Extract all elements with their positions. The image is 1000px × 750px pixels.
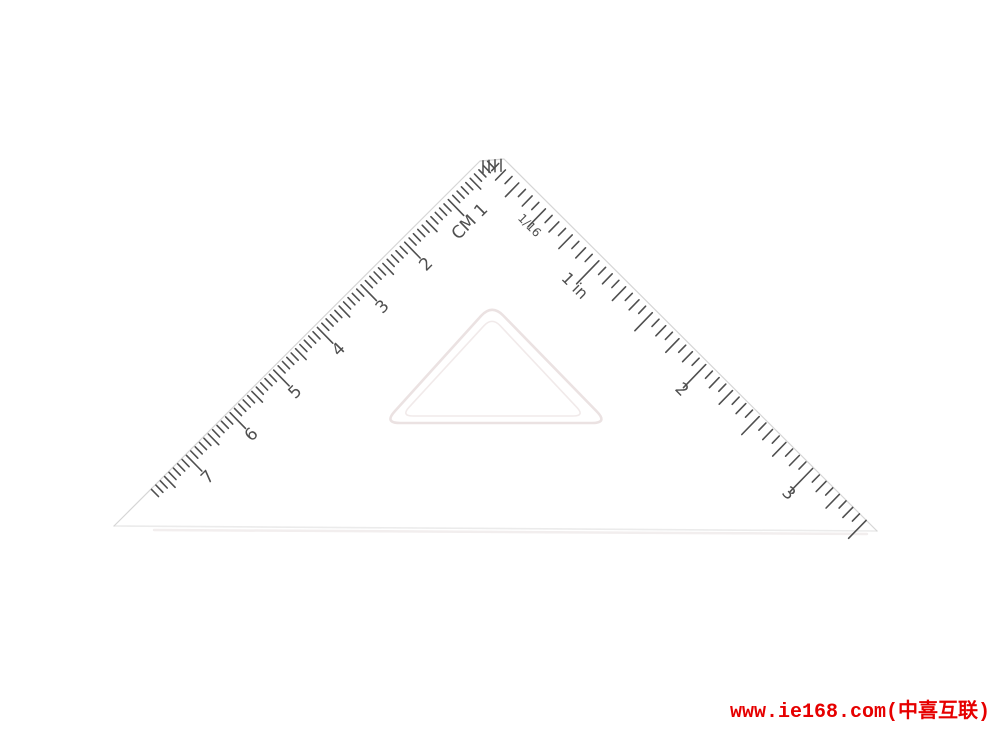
inch-tick [719,391,732,405]
inch-tick [736,404,746,414]
cm-tick [182,460,189,467]
cm-tick [361,285,376,301]
inch-tick [506,183,519,197]
cm-tick [217,425,224,432]
cm-tick [283,362,290,369]
cm-tick [256,387,263,394]
cm-tick [470,178,481,189]
cm-tick [475,174,482,181]
cm-tick [322,323,329,330]
inch-tick [732,397,739,404]
ruler-left-edge [114,161,480,526]
cm-tick [160,481,167,488]
cm-tick [265,379,272,386]
cm-tick [186,455,201,471]
cm-tick [379,268,386,275]
cm-tick [435,212,442,219]
inch-tick [522,196,532,206]
inch-scale-label: 2 [671,379,693,401]
cm-tick [309,336,316,343]
cm-tick [173,468,180,475]
inch-tick [599,267,606,274]
cm-tick [466,183,473,190]
inch-tick [839,501,846,508]
cm-tick [339,306,350,317]
inch-tick [559,228,566,235]
inch-tick [759,423,766,430]
cm-tick [208,434,219,445]
watermark-text: www.ie168.com(中喜互联) [730,701,990,724]
inch-tick [679,345,686,352]
inch-tick [709,378,719,388]
inch-tick [816,481,826,491]
cm-tick [235,408,242,415]
cm-tick [331,315,338,322]
cm-tick [213,430,220,437]
cm-scale-label: 7 [197,467,219,489]
inch-tick [799,462,806,469]
cm-tick [291,353,298,360]
inch-tick [742,417,759,435]
cm-tick [230,413,245,429]
inch-tick [639,306,646,313]
cm-tick [243,400,250,407]
inch-tick [585,254,592,261]
cm-tick [152,489,159,496]
inch-tick [635,313,652,331]
cm-tick [178,464,185,471]
photo-area: CM 12345671/161 in23 www.ie168.com(中喜互联) [0,0,1000,750]
inch-tick [849,520,867,538]
inch-tick [572,241,579,248]
cm-tick [457,191,464,198]
inch-tick [612,287,625,301]
cm-tick [365,281,372,288]
inch-tick [772,436,779,443]
cm-tick [448,200,463,216]
cm-tick [300,345,307,352]
inch-tick [826,488,833,495]
inch-scale-label: 3 [777,483,799,505]
cutout-outer-edge [390,310,601,423]
inch-tick [719,384,726,391]
inch-tick [826,494,839,508]
cm-scale-label: 6 [241,424,263,446]
cm-tick [252,391,263,402]
inch-tick [625,293,632,300]
cm-tick [278,366,285,373]
inch-tick [603,274,613,284]
cm-tick [221,421,228,428]
cm-tick [461,187,468,194]
inch-tick [549,222,559,232]
cm-tick [313,332,320,339]
cm-tick [239,404,246,411]
cm-tick [304,340,311,347]
cm-scale-label: 2 [415,254,437,276]
cm-tick [348,298,355,305]
inch-tick [532,202,539,209]
cm-scale-label: 4 [328,339,350,361]
cm-tick [204,438,211,445]
cm-tick [200,443,207,450]
cm-scale-label: 3 [372,296,394,318]
watermark: www.ie168.com(中喜互联) [730,694,990,724]
inch-tick [773,443,786,457]
cm-tick [274,370,289,386]
inch-tick [763,430,773,440]
inch-tick [518,189,525,196]
cm-tick [165,477,176,488]
cm-tick [326,319,333,326]
cm-tick [431,217,438,224]
cm-tick [287,357,294,364]
cm-tick [400,247,407,254]
cm-tick [352,293,359,300]
cm-tick [453,195,460,202]
inch-tick [505,177,512,184]
inch-tick [576,248,586,258]
cm-tick [413,234,420,241]
ruler-right-edge [504,159,877,531]
inch-tick [559,235,572,249]
cm-tick [405,242,420,258]
inch-tick [692,358,699,365]
cm-tick [317,327,332,343]
cm-tick [344,302,351,309]
cm-tick [261,383,268,390]
cm-tick [396,251,403,258]
inch-tick [746,410,753,417]
inch-tick [652,319,659,326]
inch-tick [706,371,713,378]
cm-tick [191,451,198,458]
cm-tick [422,225,429,232]
inch-tick [786,449,793,456]
cm-tick [427,221,438,232]
cm-tick [226,417,233,424]
inch-tick [790,456,800,466]
cm-tick [370,276,377,283]
cm-tick [248,396,255,403]
cm-tick [335,310,342,317]
set-square-ruler: CM 12345671/161 in23 [0,0,1000,750]
cm-tick [169,472,176,479]
cm-tick [269,374,276,381]
inch-tick [545,215,552,222]
inch-tick [612,280,619,287]
cm-tick [195,447,202,454]
cm-tick [156,485,163,492]
cm-tick [374,272,381,279]
cm-tick [387,259,394,266]
cm-tick [444,204,451,211]
cm-tick [409,238,416,245]
inch-tick [629,300,639,310]
inch-tick [852,514,859,521]
inch-tick [665,332,672,339]
inch-tick [812,475,819,482]
inch-tick [843,507,853,517]
cm-tick [440,208,447,215]
inch-tick [656,326,666,336]
cm-scale-label: 5 [284,381,306,403]
cm-tick [392,255,399,262]
inch-tick [683,352,693,362]
inch-tick [666,339,679,353]
cm-tick [357,289,364,296]
cm-tick [418,229,425,236]
